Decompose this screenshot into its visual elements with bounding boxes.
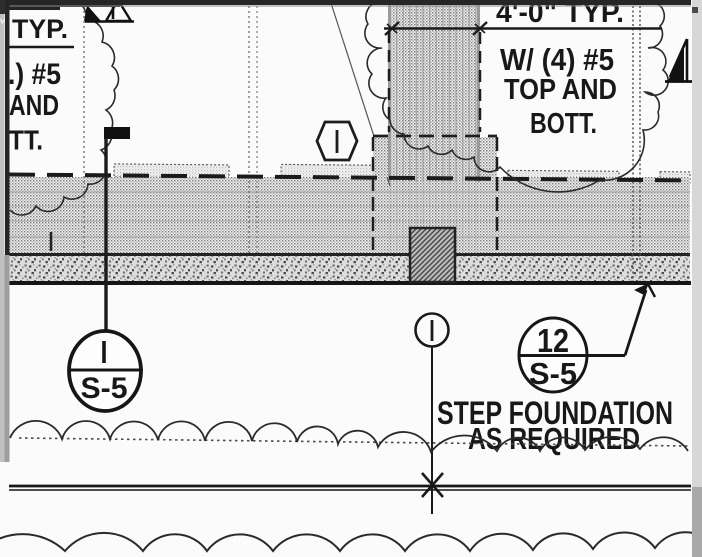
svg-text:TT.: TT. bbox=[9, 125, 43, 156]
svg-text:12: 12 bbox=[537, 322, 569, 359]
svg-text:AND: AND bbox=[9, 90, 59, 122]
svg-text:W/ (4) #5: W/ (4) #5 bbox=[500, 42, 614, 77]
svg-text:.) #5: .) #5 bbox=[8, 58, 61, 91]
svg-text:BOTT.: BOTT. bbox=[530, 108, 597, 140]
svg-text:S-5: S-5 bbox=[81, 372, 128, 405]
svg-text:TOP AND: TOP AND bbox=[504, 74, 617, 106]
svg-text:TYP.: TYP. bbox=[12, 14, 68, 44]
svg-text:S-5: S-5 bbox=[529, 356, 577, 391]
